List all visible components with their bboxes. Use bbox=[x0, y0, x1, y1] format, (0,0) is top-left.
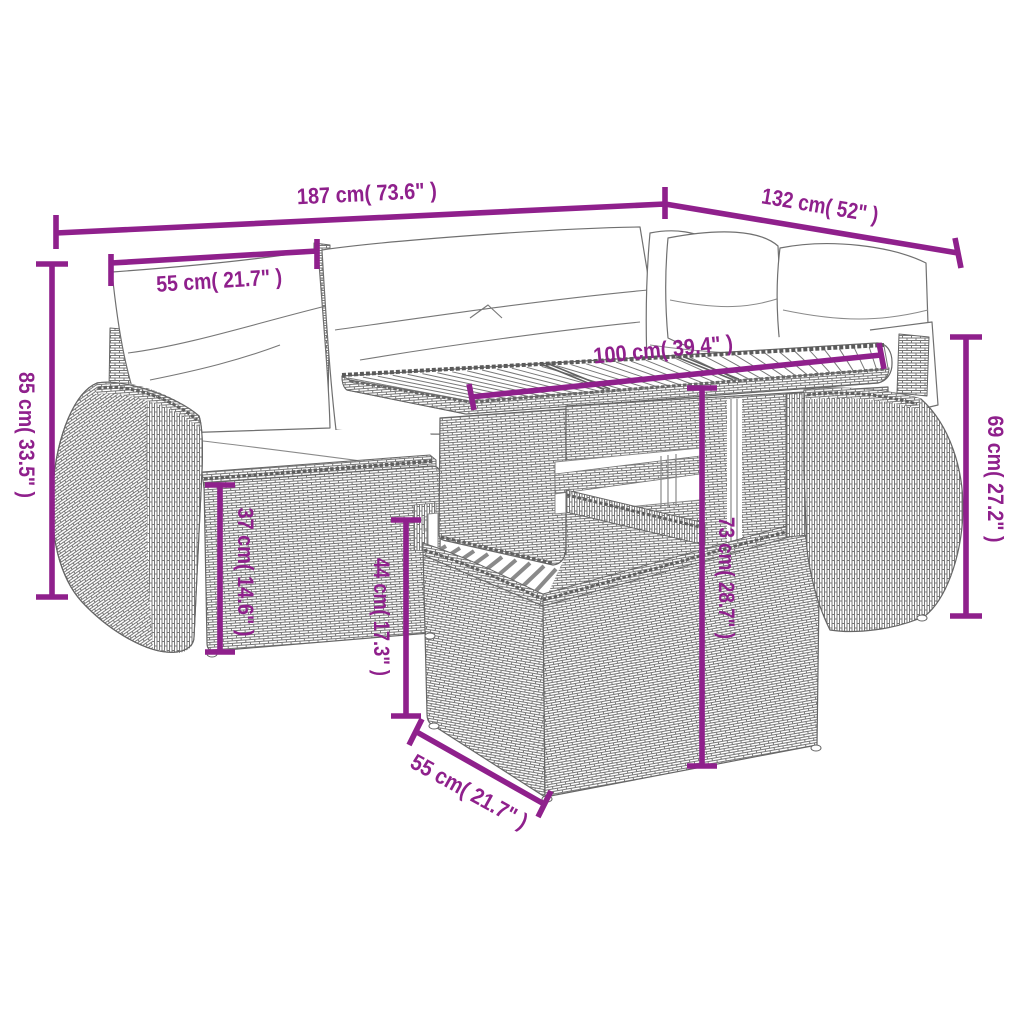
svg-text:73 cm( 28.7" ): 73 cm( 28.7" ) bbox=[714, 517, 739, 639]
svg-text:37 cm( 14.6" ): 37 cm( 14.6" ) bbox=[233, 508, 258, 637]
svg-text:44 cm( 17.3" ): 44 cm( 17.3" ) bbox=[369, 558, 394, 676]
svg-text:85 cm( 33.5" ): 85 cm( 33.5" ) bbox=[14, 372, 39, 498]
svg-text:69 cm( 27.2" ): 69 cm( 27.2" ) bbox=[983, 416, 1008, 543]
